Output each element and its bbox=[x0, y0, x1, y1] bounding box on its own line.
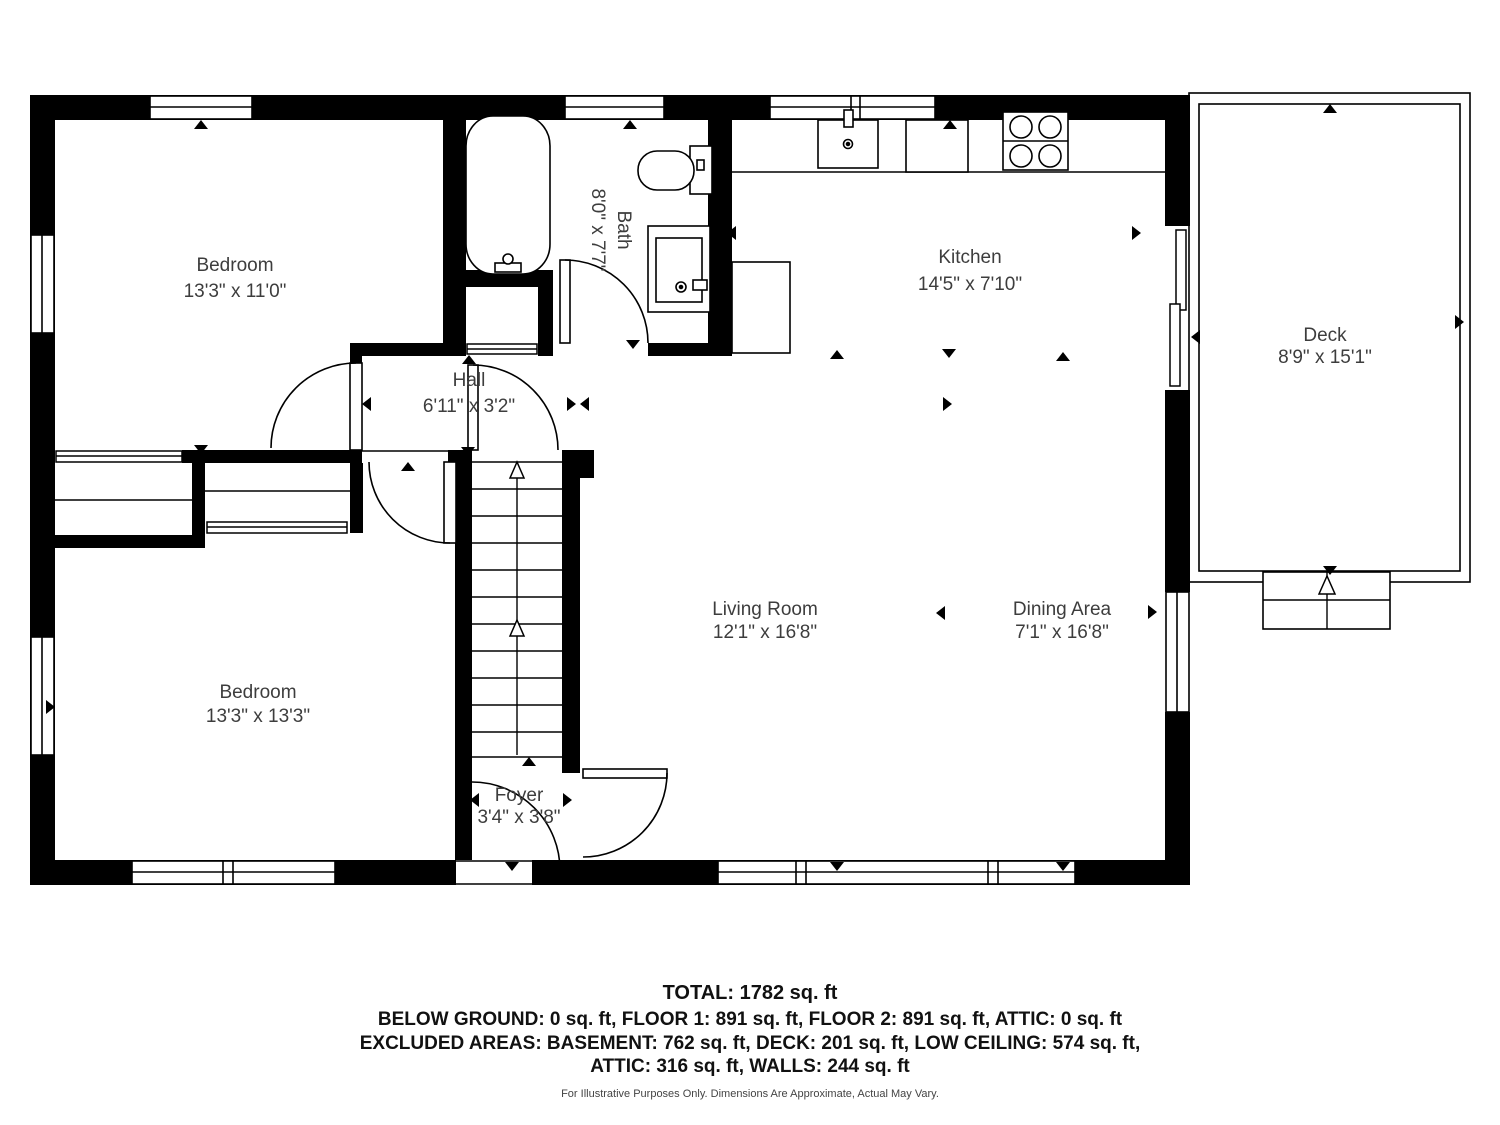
kitchen-fixtures bbox=[732, 110, 1165, 353]
floor-areas: BELOW GROUND: 0 sq. ft, FLOOR 1: 891 sq.… bbox=[0, 1009, 1500, 1031]
room-label-deck: Deck 8'9" x 15'1" bbox=[1278, 325, 1372, 368]
dishwasher-icon bbox=[906, 120, 968, 172]
room-name: Dining Area bbox=[1013, 599, 1112, 620]
room-name: Hall bbox=[453, 370, 486, 391]
toilet-icon bbox=[638, 146, 712, 194]
sink-vanity-icon bbox=[648, 226, 710, 312]
room-dims: 3'4" x 3'8" bbox=[477, 807, 560, 828]
room-name: Living Room bbox=[712, 599, 818, 620]
room-label-dining-area: Dining Area 7'1" x 16'8" bbox=[1013, 599, 1112, 643]
room-name: Bedroom bbox=[196, 255, 273, 276]
room-name: Bath bbox=[613, 210, 634, 249]
excluded-areas-1: EXCLUDED AREAS: BASEMENT: 762 sq. ft, DE… bbox=[0, 1033, 1500, 1055]
room-dims: 8'9" x 15'1" bbox=[1278, 347, 1372, 368]
room-label-bedroom-1: Bedroom 13'3" x 11'0" bbox=[184, 255, 287, 302]
room-dims: 13'3" x 11'0" bbox=[184, 281, 287, 302]
room-label-living-room: Living Room 12'1" x 16'8" bbox=[712, 599, 818, 643]
foyer-living-door bbox=[583, 769, 667, 857]
total-area: TOTAL: 1782 sq. ft bbox=[0, 982, 1500, 1005]
walls bbox=[30, 95, 1190, 885]
room-dims: 12'1" x 16'8" bbox=[713, 622, 817, 643]
bedroom1-left-window bbox=[31, 235, 54, 333]
room-dims: 14'5" x 7'10" bbox=[918, 274, 1022, 295]
direction-marker-icons bbox=[46, 104, 1464, 871]
room-label-foyer: Foyer 3'4" x 3'8" bbox=[477, 785, 560, 828]
living-bottom-window bbox=[718, 861, 1075, 884]
bedroom1-top-window bbox=[150, 96, 252, 119]
dining-right-window bbox=[1166, 592, 1189, 712]
room-dims: 13'3" x 13'3" bbox=[206, 706, 310, 727]
wall-openings bbox=[55, 226, 1193, 885]
bath-door bbox=[560, 260, 648, 343]
floor-plan: Bedroom 13'3" x 11'0" Bath 8'0" x 7'7" K… bbox=[0, 0, 1500, 950]
bedroom2-left-window bbox=[31, 637, 54, 755]
room-name: Foyer bbox=[495, 785, 544, 806]
excluded-areas-2: ATTIC: 316 sq. ft, WALLS: 244 sq. ft bbox=[0, 1056, 1500, 1078]
disclaimer: For Illustrative Purposes Only. Dimensio… bbox=[0, 1088, 1500, 1100]
room-name: Kitchen bbox=[938, 247, 1001, 268]
stairs bbox=[472, 462, 562, 757]
bedroom2-door bbox=[369, 462, 456, 543]
bathtub-icon bbox=[466, 116, 550, 274]
bath-top-window bbox=[565, 96, 664, 119]
deck-steps bbox=[1263, 572, 1390, 629]
room-dims: 7'1" x 16'8" bbox=[1015, 622, 1109, 643]
room-label-bedroom-2: Bedroom 13'3" x 13'3" bbox=[206, 682, 310, 727]
room-dims: 8'0" x 7'7" bbox=[587, 188, 608, 271]
bedroom2-bottom-window bbox=[132, 861, 335, 884]
stove-icon bbox=[1003, 112, 1068, 170]
room-dims: 6'11" x 3'2" bbox=[423, 396, 515, 417]
closet-b-front bbox=[207, 522, 347, 533]
refrigerator-icon bbox=[732, 262, 790, 353]
room-label-bath: Bath 8'0" x 7'7" bbox=[587, 188, 634, 271]
room-label-kitchen: Kitchen 14'5" x 7'10" bbox=[918, 247, 1022, 295]
floor-plan-page: Bedroom 13'3" x 11'0" Bath 8'0" x 7'7" K… bbox=[0, 0, 1500, 1125]
room-name: Deck bbox=[1303, 325, 1347, 346]
room-name: Bedroom bbox=[219, 682, 296, 703]
bedroom1-door bbox=[271, 363, 362, 450]
